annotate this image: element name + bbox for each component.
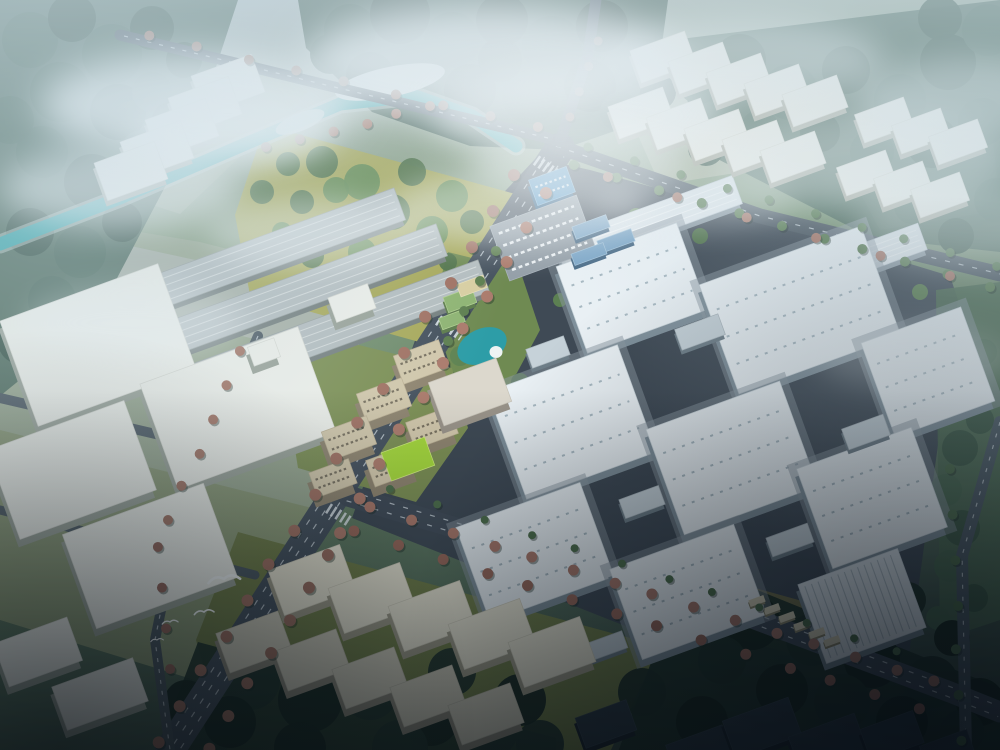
scene-canvas xyxy=(0,0,1000,750)
pond-dome-pavilion xyxy=(490,346,503,358)
aerial-rendering xyxy=(0,0,1000,750)
